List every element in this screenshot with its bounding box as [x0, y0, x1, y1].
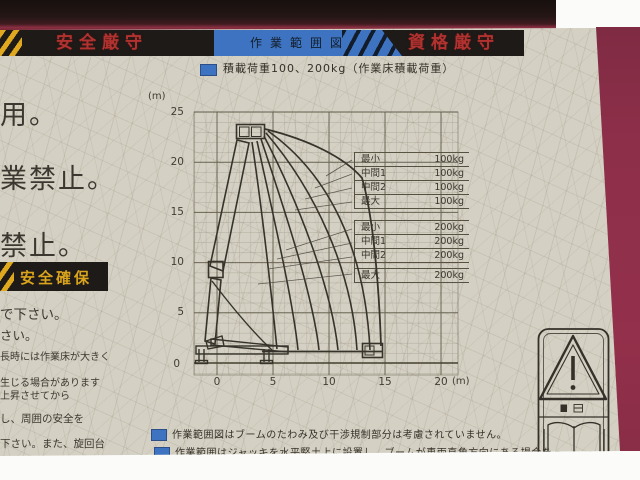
warning-triangle-icon: [540, 336, 606, 399]
open-book-icon: [544, 423, 604, 457]
working-range-sticker: 安全厳守 作業範囲図 資格厳守 積載荷重100、200kg（作業床積載荷重） 用…: [0, 0, 640, 480]
machine-body-top-edge: [0, 0, 556, 30]
photo-of-working-range-label: 安全厳守 作業範囲図 資格厳守 積載荷重100、200kg（作業床積載荷重） 用…: [0, 0, 640, 480]
working-range-diagram: [0, 0, 640, 480]
warning-small-marks: [561, 405, 583, 413]
warning-pictogram: [539, 329, 609, 467]
